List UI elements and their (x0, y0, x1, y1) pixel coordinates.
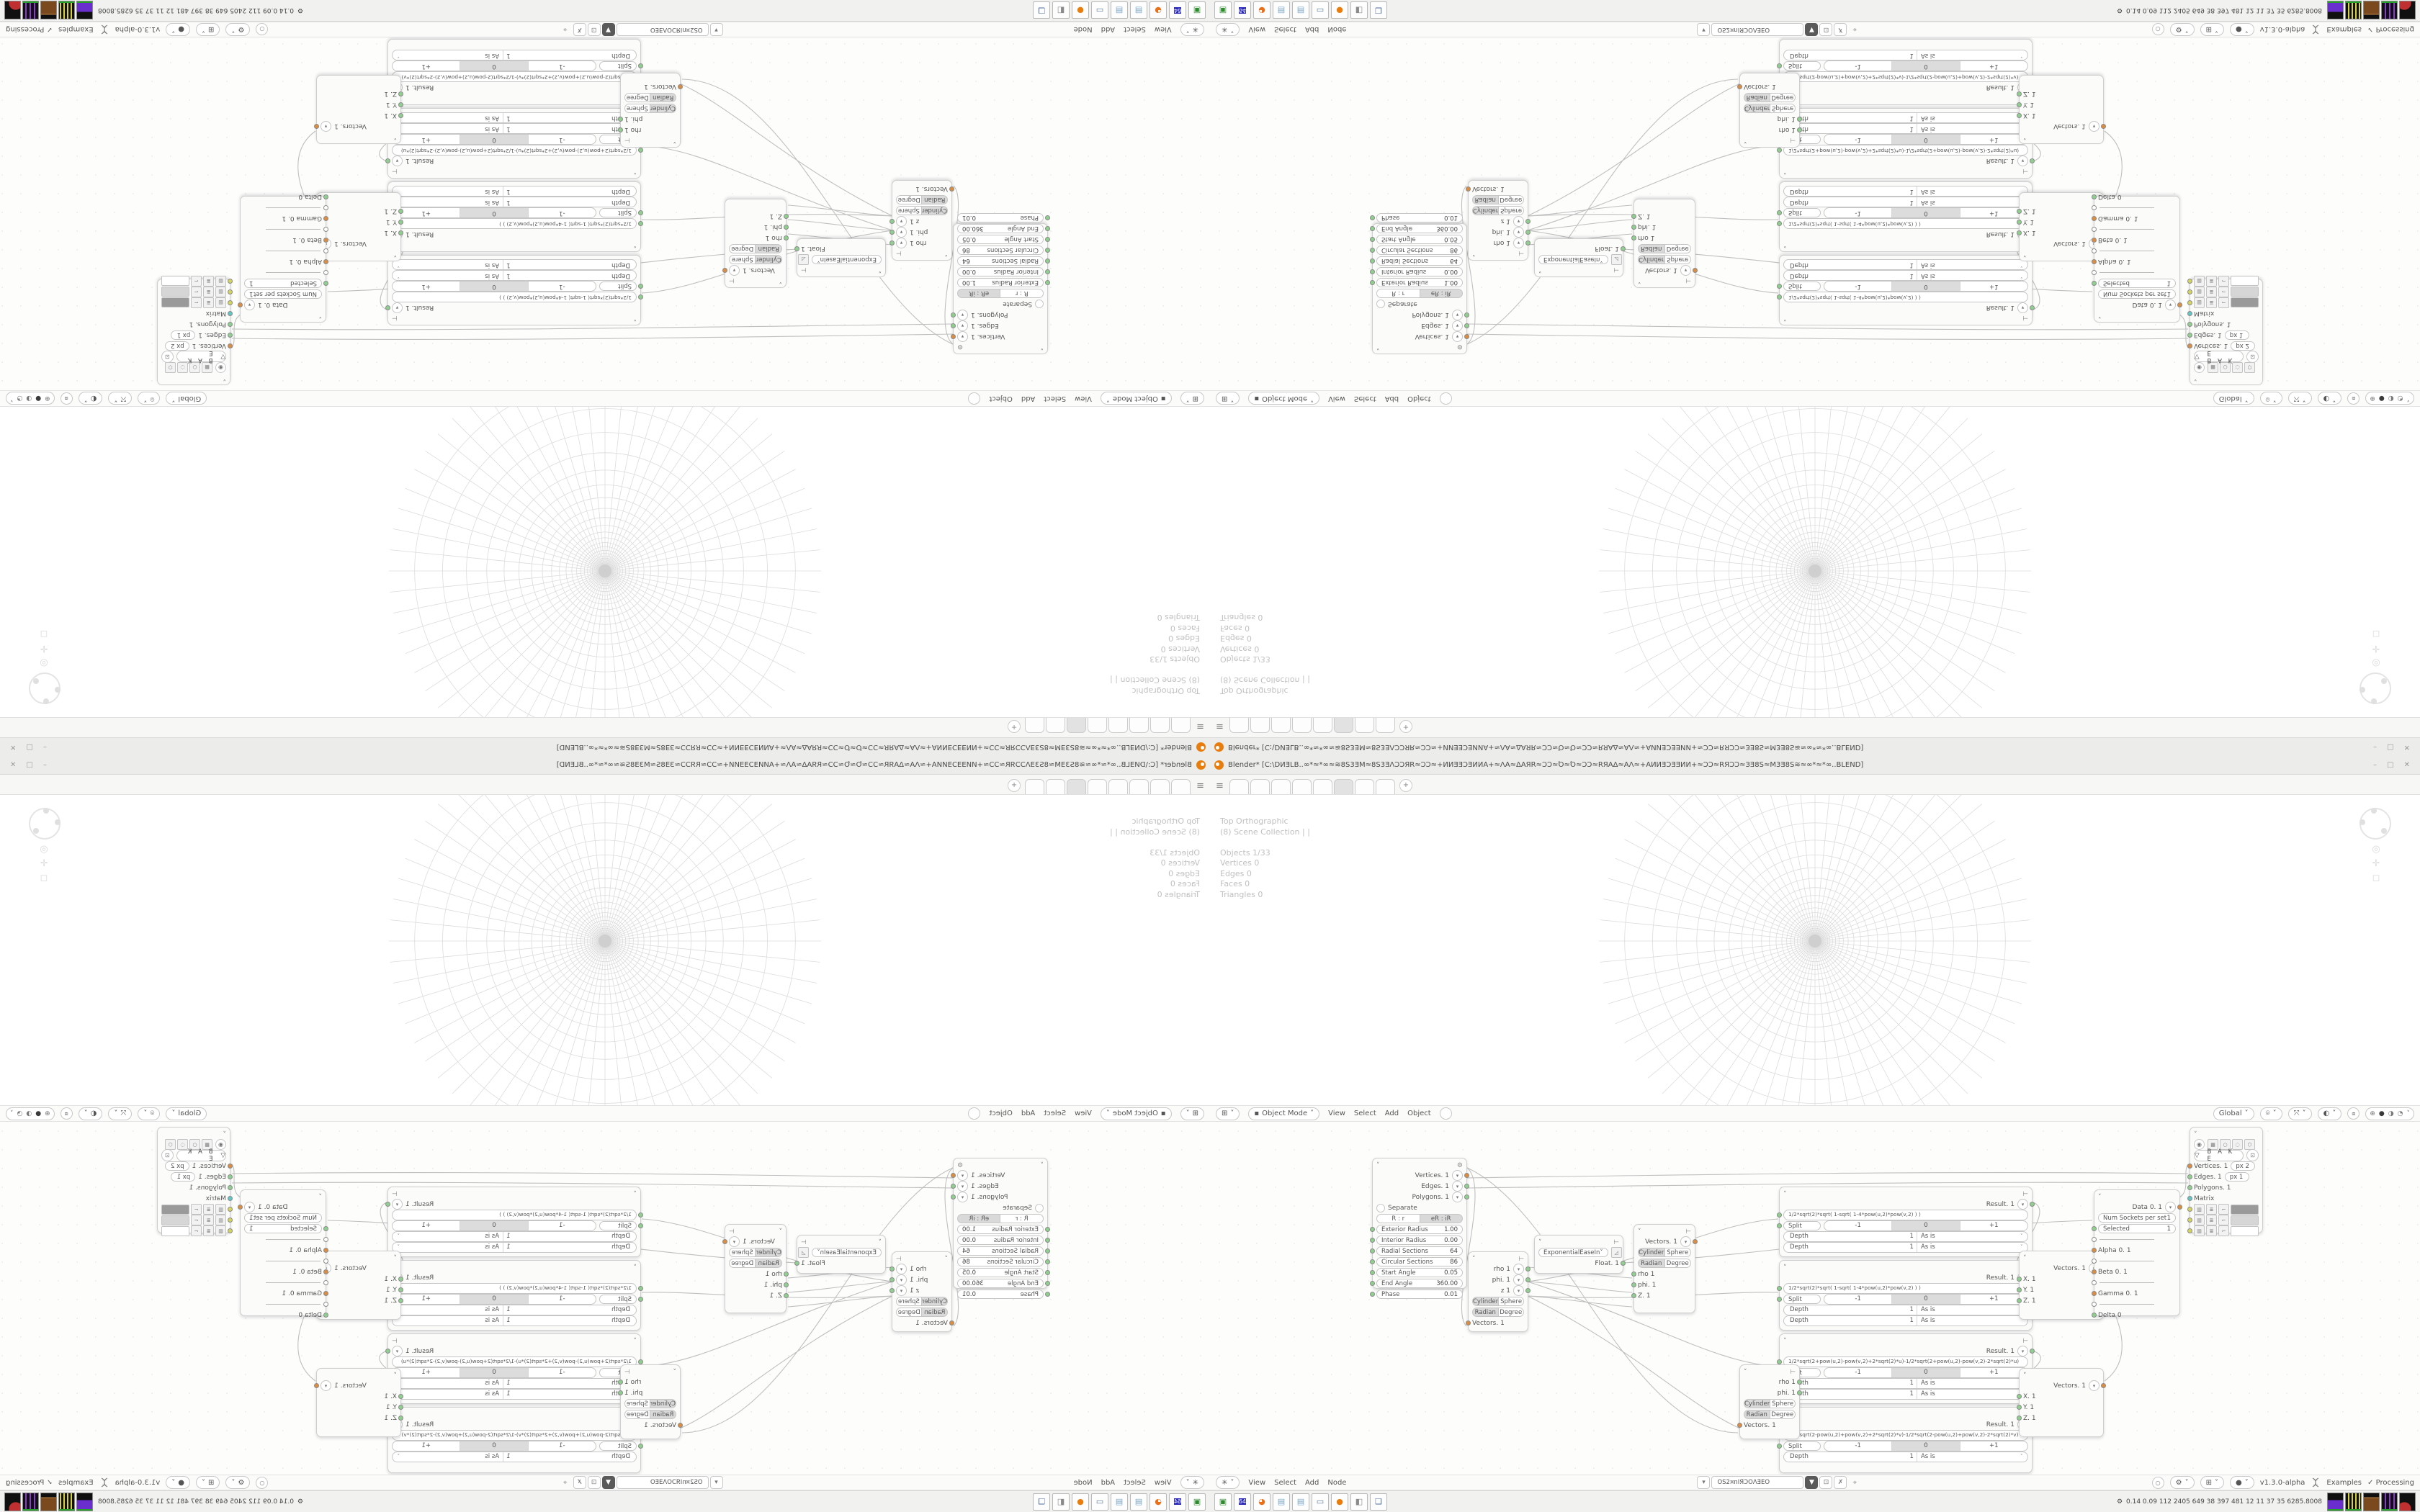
node-formula-2[interactable]: ˅⊢ Result. 1▾ 1/2*sqrt(2)*sqrt( 1-sqrt( … (387, 181, 641, 252)
header-circle-button-1[interactable]: ○ (2152, 24, 2164, 36)
node-vector-in-2[interactable]: ˅ Vectors. 1▾ X. 1 Y. 1 Z. 1 (316, 1368, 401, 1437)
viewport-shading-cluster[interactable]: ⊕ ● ◑ ◔ ˅ (6, 1107, 55, 1120)
taskbar-blender-app-icon[interactable]: ● (1331, 1493, 1348, 1511)
formula-field[interactable]: 1/2*sqrt(2)*sqrt( 1-sqrt( 1-4*pow(u,2)*p… (392, 1210, 637, 1220)
socket-edges-in[interactable] (2187, 333, 2192, 338)
node-vector-polar-input[interactable]: ˅⊢ Vectors. 1▾ CylinderSphere RadianDegr… (725, 199, 786, 288)
viewer-display-toggle[interactable]: ◉ (215, 1139, 226, 1150)
menu-add[interactable]: Add (1021, 1110, 1035, 1117)
slider-radial-sections[interactable]: Radial Sections64 (957, 256, 1044, 266)
slider-circular-sections[interactable]: Circular Sections86 (1376, 1257, 1463, 1266)
proportional-edit-toggle[interactable]: ⤧˅ (108, 1107, 132, 1120)
socket-vectors-in[interactable] (1466, 186, 1471, 192)
socket-u-in[interactable] (1777, 148, 1782, 153)
angle-unit-toggle[interactable]: RadianDegree (729, 1259, 782, 1268)
num-sockets-field[interactable]: Num Sockets per set1 (244, 1213, 322, 1223)
bake-copy-icon[interactable]: ⊡ (2246, 351, 2259, 363)
split-toggle[interactable]: Split (1783, 1221, 1821, 1230)
depth-row[interactable]: Depth1As is˅ (1783, 112, 2028, 123)
menu-add[interactable]: Add (1385, 395, 1399, 402)
node-formula-3[interactable]: ˅⊢ Result. 1▾ 1/2*sqrt(2+pow(u,2)-pow(v,… (1779, 1333, 2033, 1404)
easing-mode-select[interactable]: ExponentialEaseIn˅ (812, 1248, 882, 1257)
slider-interior-radius[interactable]: Interior Radius0.00 (957, 267, 1044, 276)
depth-row[interactable]: Depth1As is˅ (392, 259, 637, 270)
socket-result-out[interactable] (2030, 1202, 2035, 1207)
menu-view[interactable]: View (1155, 1479, 1172, 1487)
workspace-tab-4[interactable] (1292, 718, 1312, 733)
minimize-button[interactable]: – (43, 761, 47, 769)
maximize-button[interactable]: □ (2387, 761, 2393, 769)
navigation-gizmo[interactable] (2359, 808, 2391, 840)
line-width-field[interactable]: px 1 (171, 330, 195, 340)
socket-rho-out[interactable] (889, 1266, 895, 1272)
gear-icon[interactable]: ⚙ (1457, 343, 1463, 351)
easing-preview-icon[interactable]: ◿ (798, 254, 809, 265)
socket-vectors-in[interactable] (678, 84, 683, 89)
workspace-tab-3[interactable] (1271, 779, 1291, 794)
wrap-segment[interactable]: -10+1 (1824, 134, 2028, 145)
node-vector-polar-output-2[interactable]: ˅⊢ rho 1 phi. 1 CylinderSphere RadianDeg… (1739, 1364, 1800, 1439)
slider-exterior-radius[interactable]: Exterior Radius1.00 (957, 1225, 1044, 1234)
proportional-edit-toggle[interactable]: ⤧˅ (2288, 1107, 2312, 1120)
socket-beta-in[interactable] (2092, 238, 2097, 243)
node-torus[interactable]: ˅⚙ Vertices. 1▾ Edges. 1▾ Polygons. 1▾ S… (1372, 223, 1467, 354)
socket-u-in[interactable] (638, 1212, 643, 1218)
socket-data-out[interactable] (2177, 1205, 2182, 1210)
socket-v-in[interactable] (1777, 63, 1782, 68)
formula-field[interactable]: 1/2*sqrt(2+pow(u,2)-pow(v,2)+2*sqrt(2)*u… (392, 145, 637, 156)
header-circle-button-4[interactable]: ●˅ (166, 1476, 190, 1489)
transform-orientation-select[interactable]: Global˅ (2213, 1107, 2254, 1120)
wrap-segment[interactable]: -10+1 (1824, 60, 2028, 71)
header-circle-button-4[interactable]: ●˅ (2230, 1476, 2254, 1489)
workspace-tab-3[interactable] (1271, 718, 1291, 733)
taskbar-media-app-icon[interactable]: ▭ (1312, 1493, 1329, 1511)
socket-polygons-out[interactable] (951, 312, 956, 318)
angle-unit-toggle[interactable]: RadianDegree (896, 1308, 948, 1317)
taskbar-window-app-icon[interactable]: ❑ (1033, 2, 1050, 19)
slider-end-angle[interactable]: End Angle360.00 (957, 1279, 1044, 1288)
socket-alpha-in[interactable] (323, 259, 328, 264)
formula-field[interactable]: 1/2*sqrt(2-pow(u,2)+pow(v,2)+2*sqrt(2)*v… (392, 71, 637, 82)
split-toggle[interactable]: Split (1783, 1441, 1821, 1451)
node-vector-polar-output[interactable]: ˅⊢ rho 1▾ phi. 1▾ z 1▾ CylinderSphere Ra… (1468, 180, 1528, 261)
editor-type-select[interactable]: ⊞˅ (1180, 1107, 1204, 1120)
processing-checkbox[interactable]: ✓ Processing (2367, 26, 2414, 34)
examples-menu[interactable]: Examples (2326, 1479, 2362, 1487)
socket-edges-out[interactable] (1464, 323, 1469, 328)
wrap-segment[interactable]: -10+1 (1824, 1441, 2028, 1452)
socket-alpha-in[interactable] (2092, 259, 2097, 264)
node-formula-1[interactable]: ˅⊢ Result. 1▾ 1/2*sqrt(2)*sqrt( 1-sqrt( … (387, 1187, 641, 1257)
maximize-button[interactable]: □ (26, 761, 32, 769)
easing-mode-select[interactable]: ExponentialEaseIn˅ (1538, 1248, 1608, 1257)
socket-alpha-in[interactable] (323, 1248, 328, 1253)
angle-unit-toggle[interactable]: RadianDegree (1472, 1308, 1524, 1317)
node-torus[interactable]: ˅⚙ Vertices. 1▾ Edges. 1▾ Polygons. 1▾ S… (1372, 1158, 1467, 1289)
copy-icon[interactable]: ⊡ (588, 23, 601, 36)
depth-row[interactable]: Depth1As is˅ (1783, 1242, 2028, 1253)
socket-polygons-in[interactable] (2187, 1185, 2192, 1190)
depth-row[interactable]: Depth1As is˅ (1783, 270, 2028, 281)
active-tool-circle[interactable] (968, 392, 980, 405)
editor-type-select[interactable]: ✳˅ (1180, 23, 1204, 36)
socket-z-in[interactable] (1631, 1293, 1636, 1298)
socket-edges-in[interactable] (2187, 1174, 2192, 1179)
depth-row[interactable]: Depth1As is˅ (392, 186, 637, 197)
socket-v-in[interactable] (1777, 1297, 1782, 1302)
depth-row[interactable]: Depth1As is˅ (392, 197, 637, 207)
node-easing[interactable]: ˅⊢ ExponentialEaseIn˅◿ Float. 1 (797, 238, 886, 277)
taskbar-notepad2-app-icon[interactable]: ▤ (1292, 1493, 1309, 1511)
bake-button[interactable]: ▽B A K E (176, 1150, 226, 1161)
mode-select[interactable]: ▪ Object Mode˅ (1101, 392, 1172, 405)
taskbar-console-app-icon[interactable]: ▣ (1214, 1493, 1232, 1511)
workspace-tab-8[interactable] (1376, 718, 1395, 733)
viewport-side-tools[interactable]: ◎✛◻ (2370, 626, 2383, 670)
unlink-x-icon[interactable]: ✗ (573, 23, 586, 36)
socket-phi-in[interactable] (1631, 1282, 1636, 1287)
browse-tree-dropdown[interactable]: ▾ (1697, 1476, 1710, 1489)
menu-node[interactable]: Node (1074, 1479, 1093, 1487)
socket-u-in[interactable] (1777, 1359, 1782, 1364)
socket-vectors-out[interactable] (722, 268, 727, 273)
viewport-side-tools[interactable]: ◎✛◻ (37, 842, 50, 886)
workspace-tab-5[interactable] (1088, 718, 1107, 733)
examples-menu[interactable]: Examples (58, 26, 94, 34)
menu-object[interactable]: Object (1407, 395, 1431, 402)
slider-phase[interactable]: Phase0.01 (1376, 213, 1463, 222)
depth-row[interactable]: Depth1As is˅ (392, 50, 637, 60)
formula-field[interactable]: 1/2*sqrt(2+pow(u,2)-pow(v,2)+2*sqrt(2)*u… (1783, 145, 2028, 156)
socket-phi-in[interactable] (1631, 225, 1636, 230)
socket-z-in[interactable] (784, 214, 789, 219)
wrap-segment[interactable]: -10+1 (392, 207, 596, 218)
node-formula-y[interactable]: ˅Y⊢ Result. 1▾ 1/2*sqrt(2-pow(u,2)+pow(v… (1779, 1407, 2033, 1473)
socket-beta-in[interactable] (323, 1269, 328, 1274)
socket-polygons-out[interactable] (951, 1194, 956, 1200)
socket-vertices-out[interactable] (1464, 334, 1469, 339)
socket-result-out[interactable] (385, 1202, 390, 1207)
bake-copy-icon[interactable]: ⊡ (161, 351, 174, 363)
node-vector-polar-input[interactable]: ˅⊢ Vectors. 1▾ CylinderSphere RadianDegr… (1633, 1224, 1695, 1313)
add-workspace-button[interactable]: + (1399, 779, 1412, 792)
vertex-color-swatch[interactable] (2231, 298, 2259, 308)
socket-rho-in[interactable] (1631, 1272, 1636, 1277)
workspace-tab-2[interactable] (1250, 718, 1270, 733)
depth-row[interactable]: Depth1As is˅ (1783, 123, 2028, 134)
header-circle-button-4[interactable]: ●˅ (2230, 23, 2254, 36)
header-circle-button-1[interactable]: ○ (256, 24, 268, 36)
processing-checkbox[interactable]: ✓ Processing (2367, 1479, 2414, 1487)
socket-y-in[interactable] (2017, 102, 2022, 107)
socket-vectors-in[interactable] (678, 1423, 683, 1428)
socket-y-in[interactable] (2017, 1287, 2022, 1292)
num-sockets-field[interactable]: Num Sockets per set1 (2098, 289, 2176, 299)
browse-tree-dropdown[interactable]: ▾ (1697, 23, 1710, 36)
slider-interior-radius[interactable]: Interior Radius0.00 (1376, 267, 1463, 276)
socket-float-out[interactable] (794, 1261, 799, 1266)
tree-name-field[interactable]: OS2¤nIЯƆOΛƎEO (1711, 23, 1803, 36)
menu-select[interactable]: Select (1274, 26, 1296, 34)
torus-mode-toggle[interactable]: R : reR : iR (957, 289, 1044, 298)
node-formula-y[interactable]: ˅Y⊢ Result. 1▾ 1/2*sqrt(2-pow(u,2)+pow(v… (387, 39, 641, 105)
node-vector-polar-output-2[interactable]: ˅⊢ rho 1 phi. 1 CylinderSphere RadianDeg… (620, 1364, 681, 1439)
socket-vectors-out[interactable] (2101, 124, 2106, 129)
workspace-tab-6[interactable] (1067, 718, 1086, 733)
workspace-tab-4[interactable] (1108, 779, 1128, 794)
workspace-tab-1[interactable] (1171, 718, 1191, 733)
socket-x-in[interactable] (2017, 230, 2022, 235)
gear-icon[interactable]: ⚙ (957, 343, 963, 351)
bake-button[interactable]: ▽B A K E (2194, 1150, 2244, 1161)
overlays-toggle[interactable]: ⧈ (2347, 1107, 2359, 1120)
selected-slider[interactable]: Selected1 (244, 279, 322, 288)
socket-z-in[interactable] (398, 1298, 403, 1303)
node-formula-y[interactable]: ˅Y⊢ Result. 1▾ 1/2*sqrt(2-pow(u,2)+pow(v… (387, 1407, 641, 1473)
depth-row[interactable]: Depth1As is˅ (1783, 1231, 2028, 1242)
split-toggle[interactable]: Split (1783, 1295, 1821, 1304)
snap-toggle[interactable]: ⌾˅ (2260, 392, 2282, 405)
depth-row[interactable]: Depth1As is˅ (1783, 186, 2028, 197)
socket-vectors-out[interactable] (1693, 1239, 1698, 1244)
torus-mode-toggle[interactable]: R : reR : iR (1376, 289, 1463, 298)
socket-float-out[interactable] (1621, 246, 1626, 251)
examples-menu[interactable]: Examples (58, 1479, 94, 1487)
socket-phi-in[interactable] (784, 225, 789, 230)
hamburger-menu-icon[interactable]: ≡ (1216, 721, 1224, 732)
slider-exterior-radius[interactable]: Exterior Radius1.00 (957, 278, 1044, 287)
taskbar-console-app-icon[interactable]: ▣ (1188, 2, 1206, 19)
node-input-switch[interactable]: ˅ Data 0. 1▾ Num Sockets per set1 Select… (240, 1189, 326, 1316)
mode-select[interactable]: ▪ Object Mode˅ (1248, 1107, 1319, 1120)
angle-unit-toggle[interactable]: RadianDegree (896, 195, 948, 204)
minimize-button[interactable]: – (2373, 761, 2377, 769)
coord-system-toggle[interactable]: CylinderSphere (896, 1297, 948, 1306)
socket-v-in[interactable] (638, 63, 643, 68)
socket-v-in[interactable] (638, 284, 643, 289)
split-toggle[interactable]: Split (599, 61, 637, 71)
pivot-point-select[interactable]: ◐˅ (2318, 392, 2342, 405)
socket-v-in[interactable] (1777, 1223, 1782, 1228)
node-torus[interactable]: ˅⚙ Vertices. 1▾ Edges. 1▾ Polygons. 1▾ S… (953, 1158, 1048, 1289)
editor-type-select[interactable]: ✳˅ (1216, 23, 1240, 36)
socket-result-out[interactable] (2030, 305, 2035, 310)
node-input-switch[interactable]: ˅ Data 0. 1▾ Num Sockets per set1 Select… (2094, 1189, 2180, 1316)
depth-row[interactable]: Depth1As is˅ (1783, 1305, 2028, 1315)
header-circle-button-2[interactable]: ⚙˅ (225, 23, 250, 36)
active-tool-circle[interactable] (968, 1107, 980, 1120)
socket-z-in[interactable] (398, 1416, 403, 1421)
workspace-tab-4[interactable] (1292, 779, 1312, 794)
processing-checkbox[interactable]: ✓ Processing (6, 1479, 53, 1487)
close-button[interactable]: ✕ (10, 743, 16, 751)
socket-matrix-in[interactable] (228, 1196, 233, 1201)
depth-row[interactable]: Depth1As is˅ (1783, 50, 2028, 60)
socket-matrix-in[interactable] (2187, 311, 2192, 316)
edge-color-swatch[interactable] (161, 287, 189, 297)
split-toggle[interactable]: Split (599, 1441, 637, 1451)
proportional-edit-toggle[interactable]: ⤧˅ (2288, 392, 2312, 405)
workspace-tab-5[interactable] (1088, 779, 1107, 794)
socket-z-in[interactable] (1631, 214, 1636, 219)
maximize-button[interactable]: □ (2387, 743, 2393, 751)
split-toggle[interactable]: Split (599, 1221, 637, 1230)
taskbar-console-app-icon[interactable]: ▣ (1214, 2, 1232, 19)
socket-z-in[interactable] (2017, 1416, 2022, 1421)
socket-gamma-in[interactable] (2092, 1291, 2097, 1296)
viewport-3d[interactable]: Top Orthographic (8) Scene Collection | … (0, 795, 1210, 1105)
formula-field[interactable]: 1/2*sqrt(2)*sqrt( 1-sqrt( 1-4*pow(u,2)*p… (392, 292, 637, 302)
workspace-tab-6[interactable] (1334, 779, 1353, 794)
separate-checkbox[interactable] (1376, 300, 1385, 309)
angle-unit-toggle[interactable]: RadianDegree (1472, 195, 1524, 204)
viewport-shading-cluster[interactable]: ⊕ ● ◑ ◔ ˅ (2365, 1107, 2414, 1120)
socket-polygons-in[interactable] (228, 322, 233, 327)
socket-z-in[interactable] (398, 91, 403, 96)
depth-row[interactable]: Depth1As is˅ (392, 112, 637, 123)
formula-field[interactable]: 1/2*sqrt(2)*sqrt( 1-sqrt( 1-4*pow(u,2)*p… (1783, 1210, 2028, 1220)
socket-vertices-out[interactable] (951, 1173, 956, 1178)
viewer-display-toggle[interactable]: ◉ (215, 362, 226, 373)
socket-vertices-out[interactable] (951, 334, 956, 339)
navigation-gizmo[interactable] (29, 808, 60, 840)
viewport-3d[interactable]: Top Orthographic (8) Scene Collection | … (0, 407, 1210, 717)
num-sockets-field[interactable]: Num Sockets per set1 (244, 289, 322, 299)
socket-z-in[interactable] (398, 209, 403, 214)
add-workspace-button[interactable]: + (1399, 720, 1412, 733)
wrap-segment[interactable]: -10+1 (392, 281, 596, 292)
socket-phi-in[interactable] (784, 1282, 789, 1287)
workspace-tab-7[interactable] (1046, 718, 1065, 733)
socket-rho-in[interactable] (784, 1272, 789, 1277)
node-vector-in-2[interactable]: ˅ Vectors. 1▾ X. 1 Y. 1 Z. 1 (2019, 75, 2104, 144)
taskbar-blender-app-icon[interactable]: ● (1072, 1493, 1089, 1511)
split-toggle[interactable]: Split (1783, 61, 1821, 71)
node-editor[interactable]: ˅⚙ Vertices. 1▾ Edges. 1▾ Polygons. 1▾ S… (1210, 37, 2420, 390)
overlays-toggle[interactable]: ⧈ (60, 1107, 73, 1120)
menu-select[interactable]: Select (1044, 395, 1066, 402)
socket-x-in[interactable] (398, 1394, 403, 1399)
formula-field[interactable]: 1/2*sqrt(2)*sqrt( 1-sqrt( 1-4*pow(u,2)*p… (1783, 218, 2028, 229)
taskbar-window-app-icon[interactable]: ❑ (1370, 1493, 1387, 1511)
socket-delta-in[interactable] (2092, 1313, 2097, 1318)
slider-circular-sections[interactable]: Circular Sections86 (957, 1257, 1044, 1266)
add-workspace-button[interactable]: + (1008, 720, 1021, 733)
menu-view[interactable]: View (1075, 1110, 1092, 1117)
wrap-segment[interactable]: -10+1 (1824, 1220, 2028, 1231)
edge-color-swatch[interactable] (2231, 287, 2259, 297)
wrap-segment[interactable]: -10+1 (392, 1441, 596, 1452)
header-circle-button-3[interactable]: ⊞˅ (2200, 23, 2224, 36)
socket-vectors-in[interactable] (1737, 84, 1742, 89)
socket-z-in[interactable] (2017, 91, 2022, 96)
socket-x-in[interactable] (2017, 1277, 2022, 1282)
taskbar-floppy64-app-icon[interactable]: 64 (1169, 2, 1186, 19)
socket-phi-out[interactable] (889, 1277, 895, 1282)
taskbar-media-app-icon[interactable]: ▭ (1312, 2, 1329, 19)
node-viewer-draw[interactable]: ˅ ◉ ▦○◌⬡ ▽B A K E⊡ Vertices. 1px 2 Edges… (2190, 1127, 2263, 1233)
mode-select[interactable]: ▪ Object Mode˅ (1248, 392, 1319, 405)
node-viewer-draw[interactable]: ˅ ◉ ▦○◌⬡ ▽B A K E⊡ Vertices. 1px 2 Edges… (157, 1127, 230, 1233)
pin-icon[interactable]: ⌖ (1852, 26, 1857, 34)
menu-node[interactable]: Node (1327, 1479, 1346, 1487)
taskbar-floppy64-app-icon[interactable]: 64 (1234, 2, 1251, 19)
node-formula-y[interactable]: ˅Y⊢ Result. 1▾ 1/2*sqrt(2-pow(u,2)+pow(v… (1779, 39, 2033, 105)
socket-v-in[interactable] (638, 1297, 643, 1302)
pivot-point-select[interactable]: ◐˅ (79, 392, 103, 405)
proportional-edit-toggle[interactable]: ⤧˅ (108, 392, 132, 405)
workspace-tab-5[interactable] (1313, 779, 1332, 794)
workspace-tab-7[interactable] (1355, 779, 1374, 794)
node-input-switch[interactable]: ˅ Data 0. 1▾ Num Sockets per set1 Select… (240, 196, 326, 323)
menu-select[interactable]: Select (1124, 26, 1146, 34)
depth-row[interactable]: Depth1As is˅ (1783, 197, 2028, 207)
formula-field[interactable]: 1/2*sqrt(2)*sqrt( 1-sqrt( 1-4*pow(u,2)*p… (392, 218, 637, 229)
formula-field[interactable]: 1/2*sqrt(2-pow(u,2)+pow(v,2)+2*sqrt(2)*v… (392, 1430, 637, 1441)
pivot-point-select[interactable]: ◐˅ (2318, 1107, 2342, 1120)
bake-copy-icon[interactable]: ⊡ (2246, 1149, 2259, 1161)
angle-unit-toggle[interactable]: RadianDegree (729, 244, 782, 253)
selected-slider[interactable]: Selected1 (2098, 1224, 2176, 1233)
socket-polygons-in[interactable] (2187, 322, 2192, 327)
slider-phase[interactable]: Phase0.01 (1376, 1290, 1463, 1299)
easing-mode-select[interactable]: ExponentialEaseIn˅ (1538, 255, 1608, 264)
taskbar-speaker-app-icon[interactable]: ◧ (1350, 1493, 1368, 1511)
taskbar-speaker-app-icon[interactable]: ◧ (1350, 2, 1368, 19)
hamburger-menu-icon[interactable]: ≡ (1196, 721, 1204, 732)
slider-start-angle[interactable]: Start Angle0.05 (1376, 235, 1463, 244)
vertex-color-swatch[interactable] (161, 298, 189, 308)
socket-edges-in[interactable] (228, 333, 233, 338)
depth-row[interactable]: Depth1As is˅ (1783, 1315, 2028, 1326)
socket-result-out[interactable] (2030, 158, 2035, 163)
socket-vertices-in[interactable] (2187, 1164, 2192, 1169)
formula-field[interactable]: 1/2*sqrt(2-pow(u,2)+pow(v,2)+2*sqrt(2)*v… (1783, 1430, 2028, 1441)
socket-u-in[interactable] (638, 294, 643, 300)
menu-view[interactable]: View (1248, 1479, 1265, 1487)
taskbar-blender-app-icon[interactable]: ● (1072, 2, 1089, 19)
browse-tree-dropdown[interactable]: ▾ (710, 1476, 723, 1489)
node-formula-2[interactable]: ˅⊢ Result. 1▾ 1/2*sqrt(2)*sqrt( 1-sqrt( … (1779, 181, 2033, 252)
taskbar-notepad-app-icon[interactable]: ▤ (1130, 1493, 1147, 1511)
copy-icon[interactable]: ⊡ (1819, 1476, 1832, 1489)
coord-system-toggle[interactable]: CylinderSphere (729, 1248, 782, 1257)
header-circle-button-2[interactable]: ⚙˅ (2170, 1476, 2195, 1489)
node-easing[interactable]: ˅⊢ ExponentialEaseIn˅◿ Float. 1 (797, 1235, 886, 1274)
socket-edges-in[interactable] (228, 1174, 233, 1179)
menu-object[interactable]: Object (989, 1110, 1013, 1117)
snap-toggle[interactable]: ⌾˅ (138, 392, 160, 405)
workspace-tab-4[interactable] (1108, 718, 1128, 733)
socket-gamma-in[interactable] (323, 1291, 328, 1296)
socket-phi-out[interactable] (1525, 230, 1531, 235)
taskbar-window-app-icon[interactable]: ❑ (1033, 1493, 1050, 1511)
line-width-field[interactable]: px 1 (2225, 1172, 2249, 1182)
overlays-toggle[interactable]: ⧈ (60, 392, 73, 405)
socket-result-out[interactable] (385, 305, 390, 310)
viewport-side-tools[interactable]: ◎✛◻ (2370, 842, 2383, 886)
tree-name-field[interactable]: OS2¤nIЯƆOΛƎEO (617, 1476, 709, 1489)
socket-y-in[interactable] (398, 1405, 403, 1410)
socket-y-in[interactable] (398, 1287, 403, 1292)
fake-user-shield-icon[interactable]: ▼ (602, 1476, 615, 1489)
workspace-tab-6[interactable] (1334, 718, 1353, 733)
node-formula-2[interactable]: ˅⊢ Result. 1▾ 1/2*sqrt(2)*sqrt( 1-sqrt( … (1779, 1260, 2033, 1331)
socket-polygons-out[interactable] (1464, 312, 1469, 318)
coord-system-toggle[interactable]: CylinderSphere (1638, 1248, 1691, 1257)
menu-add[interactable]: Add (1305, 26, 1319, 34)
